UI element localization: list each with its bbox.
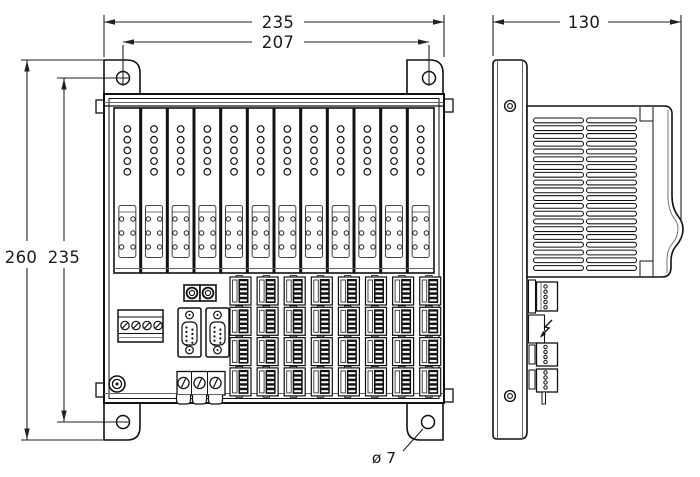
terminal-contact-slot (267, 325, 274, 327)
module-led (337, 158, 344, 165)
terminal-contact-slot (376, 346, 383, 348)
module-led (204, 147, 211, 154)
terminal-left-slot (395, 371, 400, 393)
module-pin (318, 217, 322, 221)
terminal-contact-slot (348, 286, 355, 288)
dsub-pin (219, 342, 221, 344)
vent-slot (534, 235, 584, 240)
terminal-contact-slot (403, 316, 410, 318)
terminal-contact-slot (240, 346, 247, 348)
module-pin (318, 231, 322, 235)
vent-slot (587, 188, 637, 193)
side-rail (529, 280, 536, 313)
module-led (391, 147, 398, 154)
terminal-contact-slot (240, 281, 247, 283)
module-pin (199, 231, 203, 235)
module-led (311, 126, 318, 133)
terminal-contact-slot (267, 299, 274, 301)
vent-slot (587, 149, 637, 154)
strain-relief-clamp (177, 372, 226, 405)
module-led (337, 136, 344, 143)
dim-label-front-hole-height: 235 (48, 248, 80, 267)
module-pin (146, 245, 150, 249)
vent-slot (587, 266, 637, 271)
terminal-contact-slot (376, 290, 383, 292)
terminal-contact-slot (267, 381, 274, 383)
front-view (96, 60, 453, 440)
arrowhead (433, 19, 444, 24)
terminal-left-slot (395, 310, 400, 332)
vent-slot (587, 258, 637, 263)
dsub-shell (182, 322, 197, 345)
side-terminal-pin (544, 306, 547, 309)
terminal-contact-slot (376, 295, 383, 297)
module-pin (413, 245, 417, 249)
side-view (493, 60, 683, 439)
dsub-pin (213, 335, 215, 337)
arrowhead (24, 61, 29, 72)
module-led (257, 136, 264, 143)
vent-slot (534, 219, 584, 224)
side-connector-cluster (529, 280, 558, 404)
terminal-contact-slot (267, 377, 274, 379)
vent-slot (534, 211, 584, 216)
terminal-contact-slot (376, 342, 383, 344)
terminal-contact-slot (403, 321, 410, 323)
terminal-contact-slot (403, 346, 410, 348)
module-pin (291, 217, 295, 221)
vent-slot (534, 196, 584, 201)
terminal-contact-slot (403, 290, 410, 292)
terminal-contact-slot (294, 281, 301, 283)
dsub-pin (213, 331, 215, 333)
terminal-contact-slot (267, 295, 274, 297)
round-connector (189, 290, 194, 295)
terminal-contact-slot (376, 360, 383, 362)
module-led (177, 147, 184, 154)
module-pin (146, 217, 150, 221)
side-terminal-pin (544, 360, 547, 363)
module-pin (333, 217, 337, 221)
terminal-contact-slot (403, 342, 410, 344)
terminal-contact-slot (267, 372, 274, 374)
terminal-contact-slot (376, 316, 383, 318)
module-pin (279, 217, 283, 221)
terminal-contact-slot (240, 386, 247, 388)
module-pin (211, 231, 215, 235)
vent-slot (534, 165, 584, 170)
side-terminal-pin (544, 386, 547, 389)
module-pin (386, 217, 390, 221)
terminal-contact-slot (403, 355, 410, 357)
module-pin (398, 217, 402, 221)
terminal-contact-slot (403, 360, 410, 362)
module-pin (291, 245, 295, 249)
dsub-pin (185, 331, 187, 333)
terminal-contact-slot (294, 316, 301, 318)
module-led (231, 169, 238, 176)
module-pin (199, 217, 203, 221)
terminal-contact-slot (240, 351, 247, 353)
terminal-left-slot (287, 341, 292, 363)
terminal-contact-slot (321, 321, 328, 323)
terminal-contact-slot (321, 377, 328, 379)
terminal-contact-slot (348, 330, 355, 332)
terminal-contact-slot (376, 381, 383, 383)
terminal-contact-slot (267, 355, 274, 357)
terminal-contact-slot (321, 351, 328, 353)
terminal-contact-slot (430, 342, 437, 344)
terminal-contact-slot (240, 355, 247, 357)
terminal-contact-slot (348, 390, 355, 392)
vent-slot (587, 196, 637, 201)
module-led (231, 158, 238, 165)
vent-slot (534, 126, 584, 131)
terminal-contact-slot (240, 312, 247, 314)
terminal-contact-slot (403, 386, 410, 388)
terminal-contact-slot (267, 316, 274, 318)
power-terminal-block (118, 310, 163, 342)
side-terminal-pin (544, 295, 547, 298)
terminal-left-slot (233, 310, 238, 332)
module-led (417, 158, 424, 165)
terminal-contact-slot (376, 355, 383, 357)
technical-drawing-canvas: 235 207 260 235 130 ø 7 (0, 0, 700, 477)
terminal-contact-slot (321, 290, 328, 292)
terminal-contact-slot (321, 330, 328, 332)
module-pin (398, 245, 402, 249)
module-led (124, 158, 131, 165)
module-led (364, 147, 371, 154)
side-terminal-pin (544, 355, 547, 358)
terminal-contact-slot (294, 312, 301, 314)
terminal-contact-slot (321, 286, 328, 288)
vent-slot (534, 258, 584, 263)
terminal-left-slot (233, 341, 238, 363)
arrowhead (493, 19, 504, 24)
module-led (284, 158, 291, 165)
arrowhead (61, 79, 66, 90)
vent-slot (587, 203, 637, 208)
module-pin (226, 231, 230, 235)
module-led (364, 169, 371, 176)
terminal-contact-slot (403, 372, 410, 374)
module-pin (184, 245, 188, 249)
terminal-left-slot (287, 371, 292, 393)
terminal-contact-slot (294, 295, 301, 297)
module-pin (253, 217, 257, 221)
terminal-contact-slot (267, 290, 274, 292)
module-pin (211, 245, 215, 249)
terminal-contact-slot (294, 325, 301, 327)
terminal-left-slot (395, 341, 400, 363)
module-pin (279, 231, 283, 235)
dsub-pin (191, 337, 193, 339)
terminal-contact-slot (376, 312, 383, 314)
terminal-contact-slot (267, 360, 274, 362)
terminal-contact-slot (430, 390, 437, 392)
vent-slot (587, 235, 637, 240)
terminal-contact-slot (403, 281, 410, 283)
module-led (204, 136, 211, 143)
module-led (391, 158, 398, 165)
module-pin (184, 231, 188, 235)
terminal-contact-slot (376, 372, 383, 374)
module-led (391, 136, 398, 143)
module-pin (173, 245, 177, 249)
module-led (391, 126, 398, 133)
terminal-contact-slot (294, 286, 301, 288)
terminal-contact-slot (267, 386, 274, 388)
terminal-left-slot (287, 280, 292, 302)
dimension-drawing: 235 207 260 235 130 ø 7 (0, 0, 700, 477)
terminal-left-slot (422, 371, 427, 393)
module-led (257, 158, 264, 165)
terminal-contact-slot (430, 386, 437, 388)
module-pin (211, 217, 215, 221)
terminal-contact-slot (348, 321, 355, 323)
terminal-contact-slot (240, 342, 247, 344)
arrowhead (24, 429, 29, 440)
terminal-contact-slot (348, 355, 355, 357)
module-pin (359, 231, 363, 235)
terminal-left-slot (341, 310, 346, 332)
module-pin (146, 231, 150, 235)
vent-slot (534, 203, 584, 208)
vent-slot (534, 188, 584, 193)
terminal-left-slot (395, 280, 400, 302)
module-led (177, 169, 184, 176)
terminal-left-slot (341, 371, 346, 393)
terminal-left-slot (233, 371, 238, 393)
dsub-pin (191, 329, 193, 331)
terminal-left-slot (368, 310, 373, 332)
terminal-contact-slot (430, 330, 437, 332)
terminal-contact-slot (348, 312, 355, 314)
dsub-screw-center (217, 349, 219, 351)
side-terminal-pin (544, 300, 547, 303)
dsub-pin (219, 333, 221, 335)
module-pin (333, 245, 337, 249)
dsub-screw-center (189, 314, 191, 316)
terminal-contact-slot (348, 299, 355, 301)
ground-screw-center (116, 383, 119, 386)
strain-relief-foot (209, 395, 223, 404)
module-led (257, 169, 264, 176)
dsub-pin (213, 344, 215, 346)
module-led (417, 136, 424, 143)
module-led (417, 126, 424, 133)
terminal-contact-slot (430, 316, 437, 318)
terminal-contact-slot (403, 377, 410, 379)
strain-relief-foot (177, 395, 191, 404)
dsub-pin (219, 337, 221, 339)
round-connector (205, 290, 210, 295)
terminal-contact-slot (376, 321, 383, 323)
module-pin (131, 245, 135, 249)
side-terminal-pin (544, 350, 547, 353)
module-pin (344, 231, 348, 235)
terminal-contact-slot (294, 346, 301, 348)
terminal-left-slot (233, 280, 238, 302)
module-led (204, 158, 211, 165)
module-pin (264, 245, 268, 249)
terminal-contact-slot (430, 355, 437, 357)
module-pin (344, 245, 348, 249)
ground-screw (109, 376, 125, 392)
module-pin (386, 245, 390, 249)
terminal-contact-slot (267, 321, 274, 323)
terminal-contact-slot (267, 351, 274, 353)
terminal-contact-slot (240, 381, 247, 383)
terminal-contact-slot (321, 372, 328, 374)
terminal-contact-slot (430, 351, 437, 353)
dsub-pin (185, 344, 187, 346)
vent-slot (587, 242, 637, 247)
terminal-contact-slot (321, 390, 328, 392)
dsub-pin (185, 335, 187, 337)
module-pin (173, 217, 177, 221)
terminal-left-slot (422, 280, 427, 302)
terminal-left-slot (260, 371, 265, 393)
terminal-contact-slot (430, 381, 437, 383)
vent-slot (534, 172, 584, 177)
terminal-contact-slot (430, 286, 437, 288)
dsub-pin (191, 333, 193, 335)
vent-slot (587, 141, 637, 146)
vent-slot (534, 149, 584, 154)
module-led (311, 169, 318, 176)
terminal-contact-slot (321, 346, 328, 348)
module-pin (306, 231, 310, 235)
dsub-pin (219, 329, 221, 331)
terminal-contact-slot (294, 351, 301, 353)
terminal-contact-slot (403, 381, 410, 383)
terminal-contact-slot (430, 346, 437, 348)
terminal-contact-slot (294, 381, 301, 383)
terminal-contact-slot (267, 312, 274, 314)
module-led (231, 126, 238, 133)
terminal-contact-slot (403, 286, 410, 288)
terminal-left-slot (314, 280, 319, 302)
dsub-screw-center (217, 314, 219, 316)
terminal-contact-slot (348, 346, 355, 348)
module-pin (119, 231, 123, 235)
module-pin (253, 245, 257, 249)
module-led (257, 126, 264, 133)
terminal-contact-slot (430, 360, 437, 362)
module-led (337, 169, 344, 176)
terminal-contact-slot (240, 377, 247, 379)
side-terminal-pin (544, 345, 547, 348)
module-pin (306, 217, 310, 221)
module-pin (119, 217, 123, 221)
terminal-left-slot (368, 341, 373, 363)
module-pin (371, 231, 375, 235)
vent-slot (587, 227, 637, 232)
vent-slot (534, 266, 584, 271)
terminal-contact-slot (403, 295, 410, 297)
module-led (124, 147, 131, 154)
module-led (364, 136, 371, 143)
module-led (284, 126, 291, 133)
terminal-contact-slot (294, 299, 301, 301)
module-pin (173, 231, 177, 235)
module-pin (158, 217, 162, 221)
module-pin (386, 231, 390, 235)
terminal-contact-slot (294, 377, 301, 379)
terminal-contact-slot (240, 321, 247, 323)
terminal-contact-slot (321, 386, 328, 388)
terminal-contact-slot (267, 281, 274, 283)
terminal-left-slot (422, 341, 427, 363)
terminal-contact-slot (321, 360, 328, 362)
vent-slot (587, 165, 637, 170)
side-terminal-pin (544, 290, 547, 293)
terminal-contact-slot (348, 372, 355, 374)
side-terminal-pin (544, 285, 547, 288)
side-terminal-pin (544, 381, 547, 384)
terminal-contact-slot (430, 299, 437, 301)
module-led (151, 147, 158, 154)
module-pin (318, 245, 322, 249)
vent-slot (534, 141, 584, 146)
vent-slot (587, 134, 637, 139)
terminal-contact-slot (321, 295, 328, 297)
vent-slot (534, 242, 584, 247)
terminal-contact-slot (267, 346, 274, 348)
dim-label-side-depth: 130 (568, 13, 600, 32)
terminal-contact-slot (267, 342, 274, 344)
terminal-contact-slot (403, 330, 410, 332)
terminal-contact-slot (267, 330, 274, 332)
terminal-contact-slot (348, 295, 355, 297)
terminal-contact-slot (376, 351, 383, 353)
dsub-pin (213, 326, 215, 328)
terminal-contact-slot (240, 360, 247, 362)
module-pin (253, 231, 257, 235)
terminal-contact-slot (348, 386, 355, 388)
vent-slot (587, 211, 637, 216)
terminal-left-slot (341, 280, 346, 302)
module-led (311, 147, 318, 154)
terminal-contact-slot (430, 372, 437, 374)
module-pin (158, 231, 162, 235)
terminal-contact-slot (294, 355, 301, 357)
module-led (284, 169, 291, 176)
terminal-contact-slot (321, 381, 328, 383)
terminal-contact-slot (430, 325, 437, 327)
dsub-pin (213, 340, 215, 342)
terminal-contact-slot (294, 386, 301, 388)
vent-slot (587, 250, 637, 255)
module-led (311, 158, 318, 165)
terminal-contact-slot (376, 299, 383, 301)
terminal-contact-slot (294, 330, 301, 332)
module-led (124, 169, 131, 176)
dsub-pin (185, 340, 187, 342)
terminal-left-slot (341, 341, 346, 363)
module-pin (131, 217, 135, 221)
module-pin (119, 245, 123, 249)
module-pin (413, 217, 417, 221)
terminal-contact-slot (376, 286, 383, 288)
terminal-contact-slot (430, 290, 437, 292)
terminal-contact-slot (321, 355, 328, 357)
side-pin-blade (542, 392, 546, 404)
module-pin (226, 245, 230, 249)
terminal-contact-slot (321, 312, 328, 314)
